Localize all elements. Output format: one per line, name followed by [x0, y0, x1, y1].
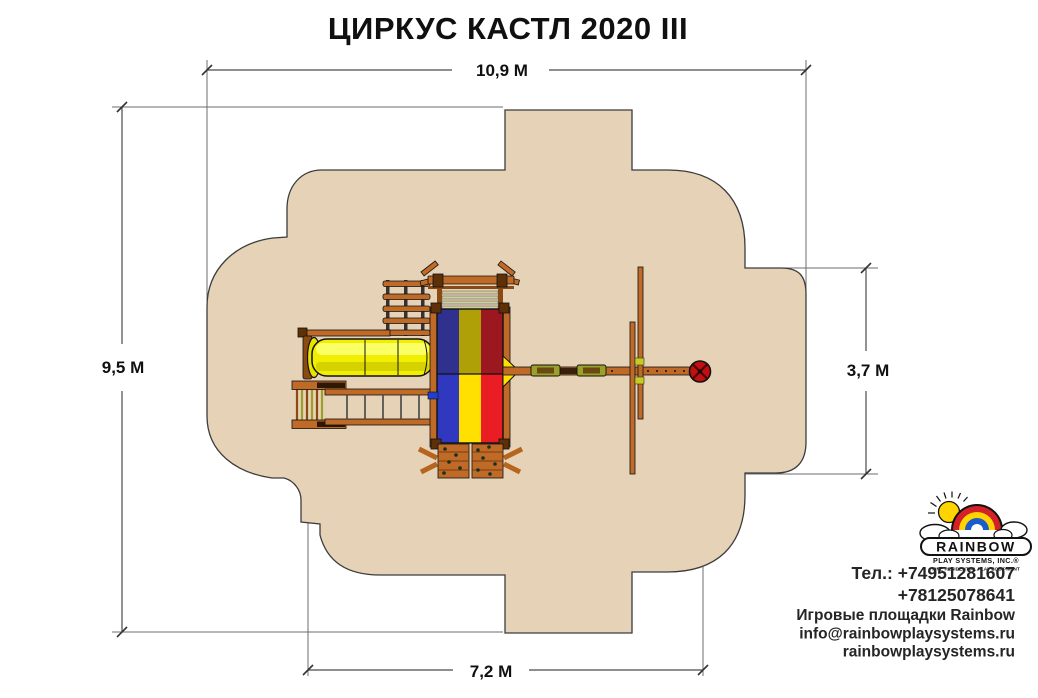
logo-brand-text: RAINBOW: [936, 539, 1016, 555]
dimension-left-label: 9,5 М: [102, 358, 145, 377]
tire-swing: [690, 361, 711, 382]
dimension-bottom-label: 7,2 М: [470, 662, 513, 681]
contact-company: Игровые площадки Rainbow: [796, 607, 1016, 624]
plan-drawing: ЦИРКУС КАСТЛ 2020 III 10,9 М 9,5 М 3,7 М…: [0, 0, 1038, 698]
swing-seat: [577, 365, 606, 376]
swing-seat: [531, 365, 560, 376]
contact-website: rainbowplaysystems.ru: [843, 644, 1015, 661]
playground-plan-page: ЦИРКУС КАСТЛ 2020 III 10,9 М 9,5 М 3,7 М…: [0, 0, 1038, 698]
dimension-top: 10,9 М: [202, 61, 811, 80]
contact-block: Тел.: +74951281607 +78125078641 Игровые …: [796, 563, 1016, 661]
dimension-bottom: 7,2 М: [303, 662, 708, 681]
dimension-right: 3,7 М: [847, 263, 890, 479]
contact-phone-2: +78125078641: [898, 585, 1016, 605]
tower-canopy: [428, 303, 510, 449]
page-title: ЦИРКУС КАСТЛ 2020 III: [328, 11, 688, 46]
contact-email: info@rainbowplaysystems.ru: [799, 626, 1015, 643]
rainbow-logo: RAINBOW PLAY SYSTEMS, INC.® FINE RESIDEN…: [920, 492, 1031, 573]
contact-phone-1: Тел.: +74951281607: [852, 563, 1016, 583]
dimension-right-label: 3,7 М: [847, 361, 890, 380]
dimension-top-label: 10,9 М: [476, 61, 528, 80]
dimension-left: 9,5 М: [102, 102, 145, 637]
